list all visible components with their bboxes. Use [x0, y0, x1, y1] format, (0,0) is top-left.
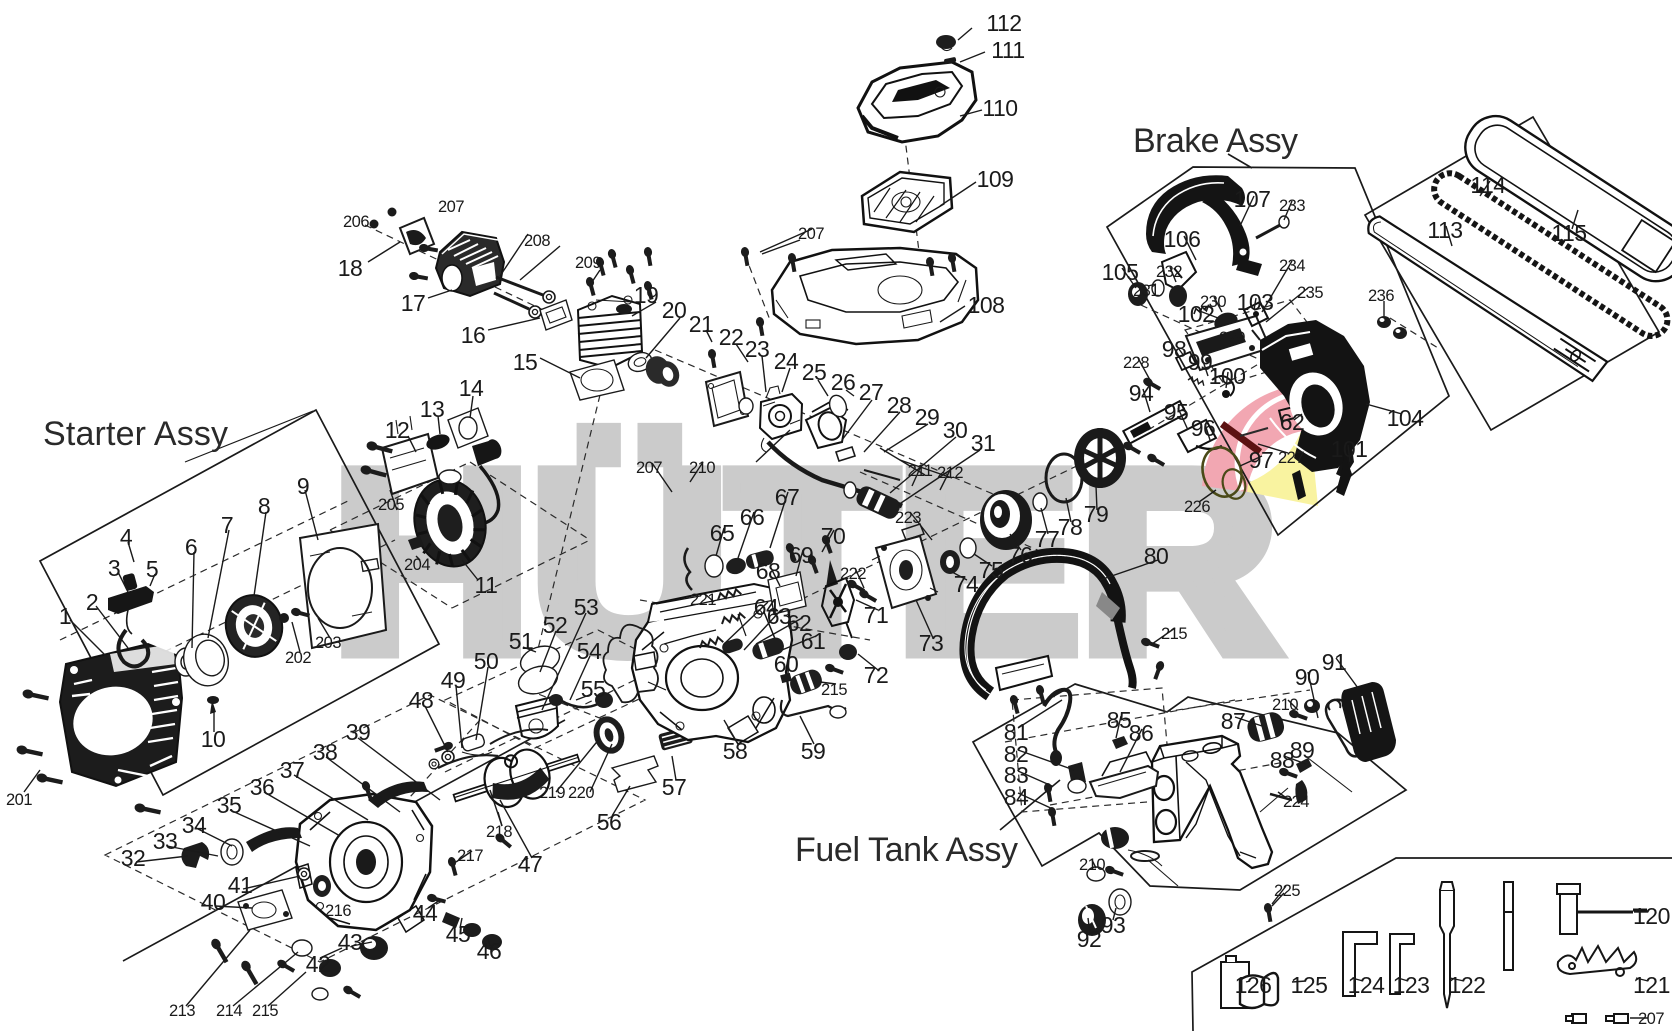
svg-text:47: 47 [518, 851, 543, 877]
svg-text:4: 4 [120, 524, 133, 550]
svg-text:36: 36 [250, 774, 275, 800]
svg-text:9: 9 [297, 473, 309, 499]
svg-text:207: 207 [798, 225, 824, 243]
svg-text:79: 79 [1084, 501, 1109, 527]
svg-text:29: 29 [915, 404, 940, 430]
svg-text:123: 123 [1393, 972, 1430, 998]
svg-text:120: 120 [1633, 903, 1670, 929]
svg-text:24: 24 [774, 348, 799, 374]
svg-text:126: 126 [1235, 972, 1272, 998]
svg-text:20: 20 [662, 297, 687, 323]
svg-text:227: 227 [1278, 449, 1304, 467]
svg-text:100: 100 [1209, 363, 1246, 389]
svg-text:94: 94 [1129, 380, 1154, 406]
svg-text:236: 236 [1368, 287, 1394, 305]
svg-text:220: 220 [568, 784, 594, 802]
svg-text:225: 225 [1274, 882, 1300, 900]
svg-text:103: 103 [1237, 289, 1274, 315]
svg-text:121: 121 [1633, 972, 1670, 998]
svg-text:39: 39 [346, 719, 371, 745]
svg-text:58: 58 [723, 738, 748, 764]
svg-text:48: 48 [409, 687, 434, 713]
svg-text:114: 114 [1470, 172, 1506, 198]
svg-text:38: 38 [313, 739, 338, 765]
svg-text:37: 37 [280, 757, 305, 783]
svg-text:42: 42 [306, 951, 331, 977]
svg-text:11: 11 [475, 572, 498, 598]
svg-text:7: 7 [221, 512, 233, 538]
svg-text:68: 68 [756, 558, 781, 584]
svg-text:44: 44 [413, 900, 438, 926]
svg-text:32: 32 [121, 845, 146, 871]
svg-text:96: 96 [1191, 415, 1216, 441]
svg-text:22: 22 [719, 324, 744, 350]
svg-text:202: 202 [285, 649, 311, 667]
svg-text:85: 85 [1107, 707, 1132, 733]
svg-text:50: 50 [474, 648, 499, 674]
svg-text:13: 13 [420, 396, 445, 422]
svg-text:56: 56 [597, 809, 622, 835]
svg-text:65: 65 [710, 520, 735, 546]
svg-text:223: 223 [895, 509, 921, 527]
svg-text:207: 207 [1638, 1010, 1664, 1028]
svg-text:15: 15 [513, 349, 538, 375]
svg-text:86: 86 [1129, 720, 1154, 746]
svg-text:Brake Assy: Brake Assy [1133, 122, 1300, 160]
svg-text:30: 30 [943, 417, 968, 443]
svg-text:210: 210 [689, 459, 715, 477]
svg-text:113: 113 [1427, 217, 1462, 243]
svg-text:115: 115 [1551, 220, 1586, 246]
svg-text:110: 110 [982, 95, 1017, 121]
svg-text:97: 97 [1249, 447, 1274, 473]
svg-text:55: 55 [581, 676, 606, 702]
svg-text:106: 106 [1164, 226, 1201, 252]
svg-text:217: 217 [457, 847, 483, 865]
svg-text:208: 208 [524, 232, 550, 250]
svg-text:35: 35 [217, 792, 242, 818]
svg-text:111: 111 [991, 37, 1024, 63]
svg-text:72: 72 [864, 662, 889, 688]
svg-text:214: 214 [216, 1002, 242, 1020]
svg-text:203: 203 [315, 634, 341, 652]
svg-text:229: 229 [1219, 329, 1245, 347]
svg-text:211: 211 [908, 462, 933, 480]
svg-text:75: 75 [979, 557, 1004, 583]
svg-text:45: 45 [446, 921, 471, 947]
svg-text:19: 19 [634, 282, 659, 308]
svg-text:226: 226 [1184, 498, 1210, 516]
svg-text:2: 2 [86, 589, 98, 615]
svg-text:101: 101 [1331, 436, 1368, 462]
svg-text:67: 67 [775, 484, 800, 510]
svg-text:215: 215 [1161, 625, 1187, 643]
svg-text:235: 235 [1297, 284, 1323, 302]
svg-text:60: 60 [774, 651, 799, 677]
svg-text:215: 215 [252, 1002, 278, 1020]
svg-text:78: 78 [1058, 514, 1083, 540]
svg-text:64: 64 [754, 594, 779, 620]
svg-text:40: 40 [201, 889, 226, 915]
svg-text:51: 51 [509, 628, 534, 654]
svg-text:Starter Assy: Starter Assy [43, 415, 230, 453]
svg-text:16: 16 [461, 322, 486, 348]
svg-text:204: 204 [404, 556, 430, 574]
svg-text:89: 89 [1290, 737, 1315, 763]
svg-text:17: 17 [401, 290, 426, 316]
svg-text:80: 80 [1144, 543, 1169, 569]
svg-text:25: 25 [802, 359, 827, 385]
svg-text:212: 212 [937, 464, 963, 482]
svg-text:230: 230 [1200, 293, 1226, 311]
svg-text:31: 31 [971, 430, 996, 456]
svg-text:77: 77 [1035, 526, 1060, 552]
svg-text:91: 91 [1322, 649, 1347, 675]
svg-text:66: 66 [740, 504, 765, 530]
svg-text:95: 95 [1164, 399, 1189, 425]
svg-text:221: 221 [690, 591, 716, 609]
svg-text:228: 228 [1123, 354, 1149, 372]
svg-text:28: 28 [887, 392, 912, 418]
svg-text:33: 33 [153, 828, 178, 854]
svg-text:49: 49 [441, 667, 466, 693]
svg-text:23: 23 [745, 336, 770, 362]
svg-text:26: 26 [831, 369, 856, 395]
svg-text:234: 234 [1279, 257, 1305, 275]
svg-text:46: 46 [477, 938, 502, 964]
svg-text:71: 71 [864, 602, 889, 628]
svg-text:93: 93 [1101, 912, 1126, 938]
svg-text:5: 5 [146, 556, 158, 582]
svg-text:210: 210 [1079, 856, 1105, 874]
svg-text:222: 222 [840, 565, 866, 583]
svg-text:18: 18 [338, 255, 363, 281]
svg-text:34: 34 [182, 812, 207, 838]
svg-text:109: 109 [977, 166, 1014, 192]
svg-text:205: 205 [378, 496, 404, 514]
svg-text:54: 54 [577, 638, 602, 664]
svg-text:53: 53 [574, 594, 599, 620]
svg-text:76: 76 [1008, 542, 1033, 568]
svg-text:92: 92 [1077, 926, 1102, 952]
svg-text:104: 104 [1387, 405, 1425, 431]
svg-text:210: 210 [1272, 696, 1298, 714]
svg-text:21: 21 [689, 311, 714, 337]
svg-text:231: 231 [1133, 282, 1159, 300]
svg-text:73: 73 [919, 630, 944, 656]
svg-text:8: 8 [258, 493, 270, 519]
svg-text:215: 215 [821, 681, 847, 699]
svg-text:233: 233 [1279, 197, 1305, 215]
svg-text:27: 27 [859, 379, 884, 405]
svg-text:98: 98 [1162, 336, 1187, 362]
svg-text:57: 57 [662, 774, 687, 800]
svg-text:124: 124 [1348, 972, 1386, 998]
svg-text:213: 213 [169, 1002, 195, 1020]
svg-text:125: 125 [1291, 972, 1328, 998]
svg-text:108: 108 [968, 292, 1005, 318]
svg-text:209: 209 [575, 254, 601, 272]
svg-text:107: 107 [1234, 186, 1271, 212]
svg-text:6: 6 [185, 534, 197, 560]
svg-text:Fuel Tank Assy: Fuel Tank Assy [795, 831, 1020, 869]
svg-text:207: 207 [636, 459, 662, 477]
svg-text:122: 122 [1449, 972, 1486, 998]
svg-text:218: 218 [486, 823, 512, 841]
svg-text:201: 201 [6, 791, 32, 809]
svg-text:216: 216 [325, 902, 351, 920]
svg-text:112: 112 [986, 10, 1021, 36]
svg-text:52: 52 [543, 612, 568, 638]
svg-text:90: 90 [1295, 664, 1320, 690]
svg-text:69: 69 [789, 542, 814, 568]
svg-text:10: 10 [201, 726, 226, 752]
svg-text:41: 41 [228, 872, 253, 898]
svg-text:224: 224 [1283, 793, 1309, 811]
svg-text:70: 70 [821, 523, 846, 549]
svg-text:12: 12 [385, 417, 410, 443]
svg-text:3: 3 [108, 555, 120, 581]
svg-text:219: 219 [539, 784, 565, 802]
svg-text:59: 59 [801, 738, 826, 764]
svg-text:232: 232 [1156, 263, 1182, 281]
svg-text:207: 207 [438, 198, 464, 216]
svg-text:43: 43 [338, 929, 363, 955]
svg-text:74: 74 [954, 571, 979, 597]
svg-text:1: 1 [59, 603, 71, 629]
svg-text:62: 62 [1280, 409, 1305, 435]
svg-text:87: 87 [1221, 708, 1246, 734]
svg-text:84: 84 [1004, 784, 1029, 810]
svg-text:14: 14 [459, 375, 484, 401]
svg-text:206: 206 [343, 213, 369, 231]
